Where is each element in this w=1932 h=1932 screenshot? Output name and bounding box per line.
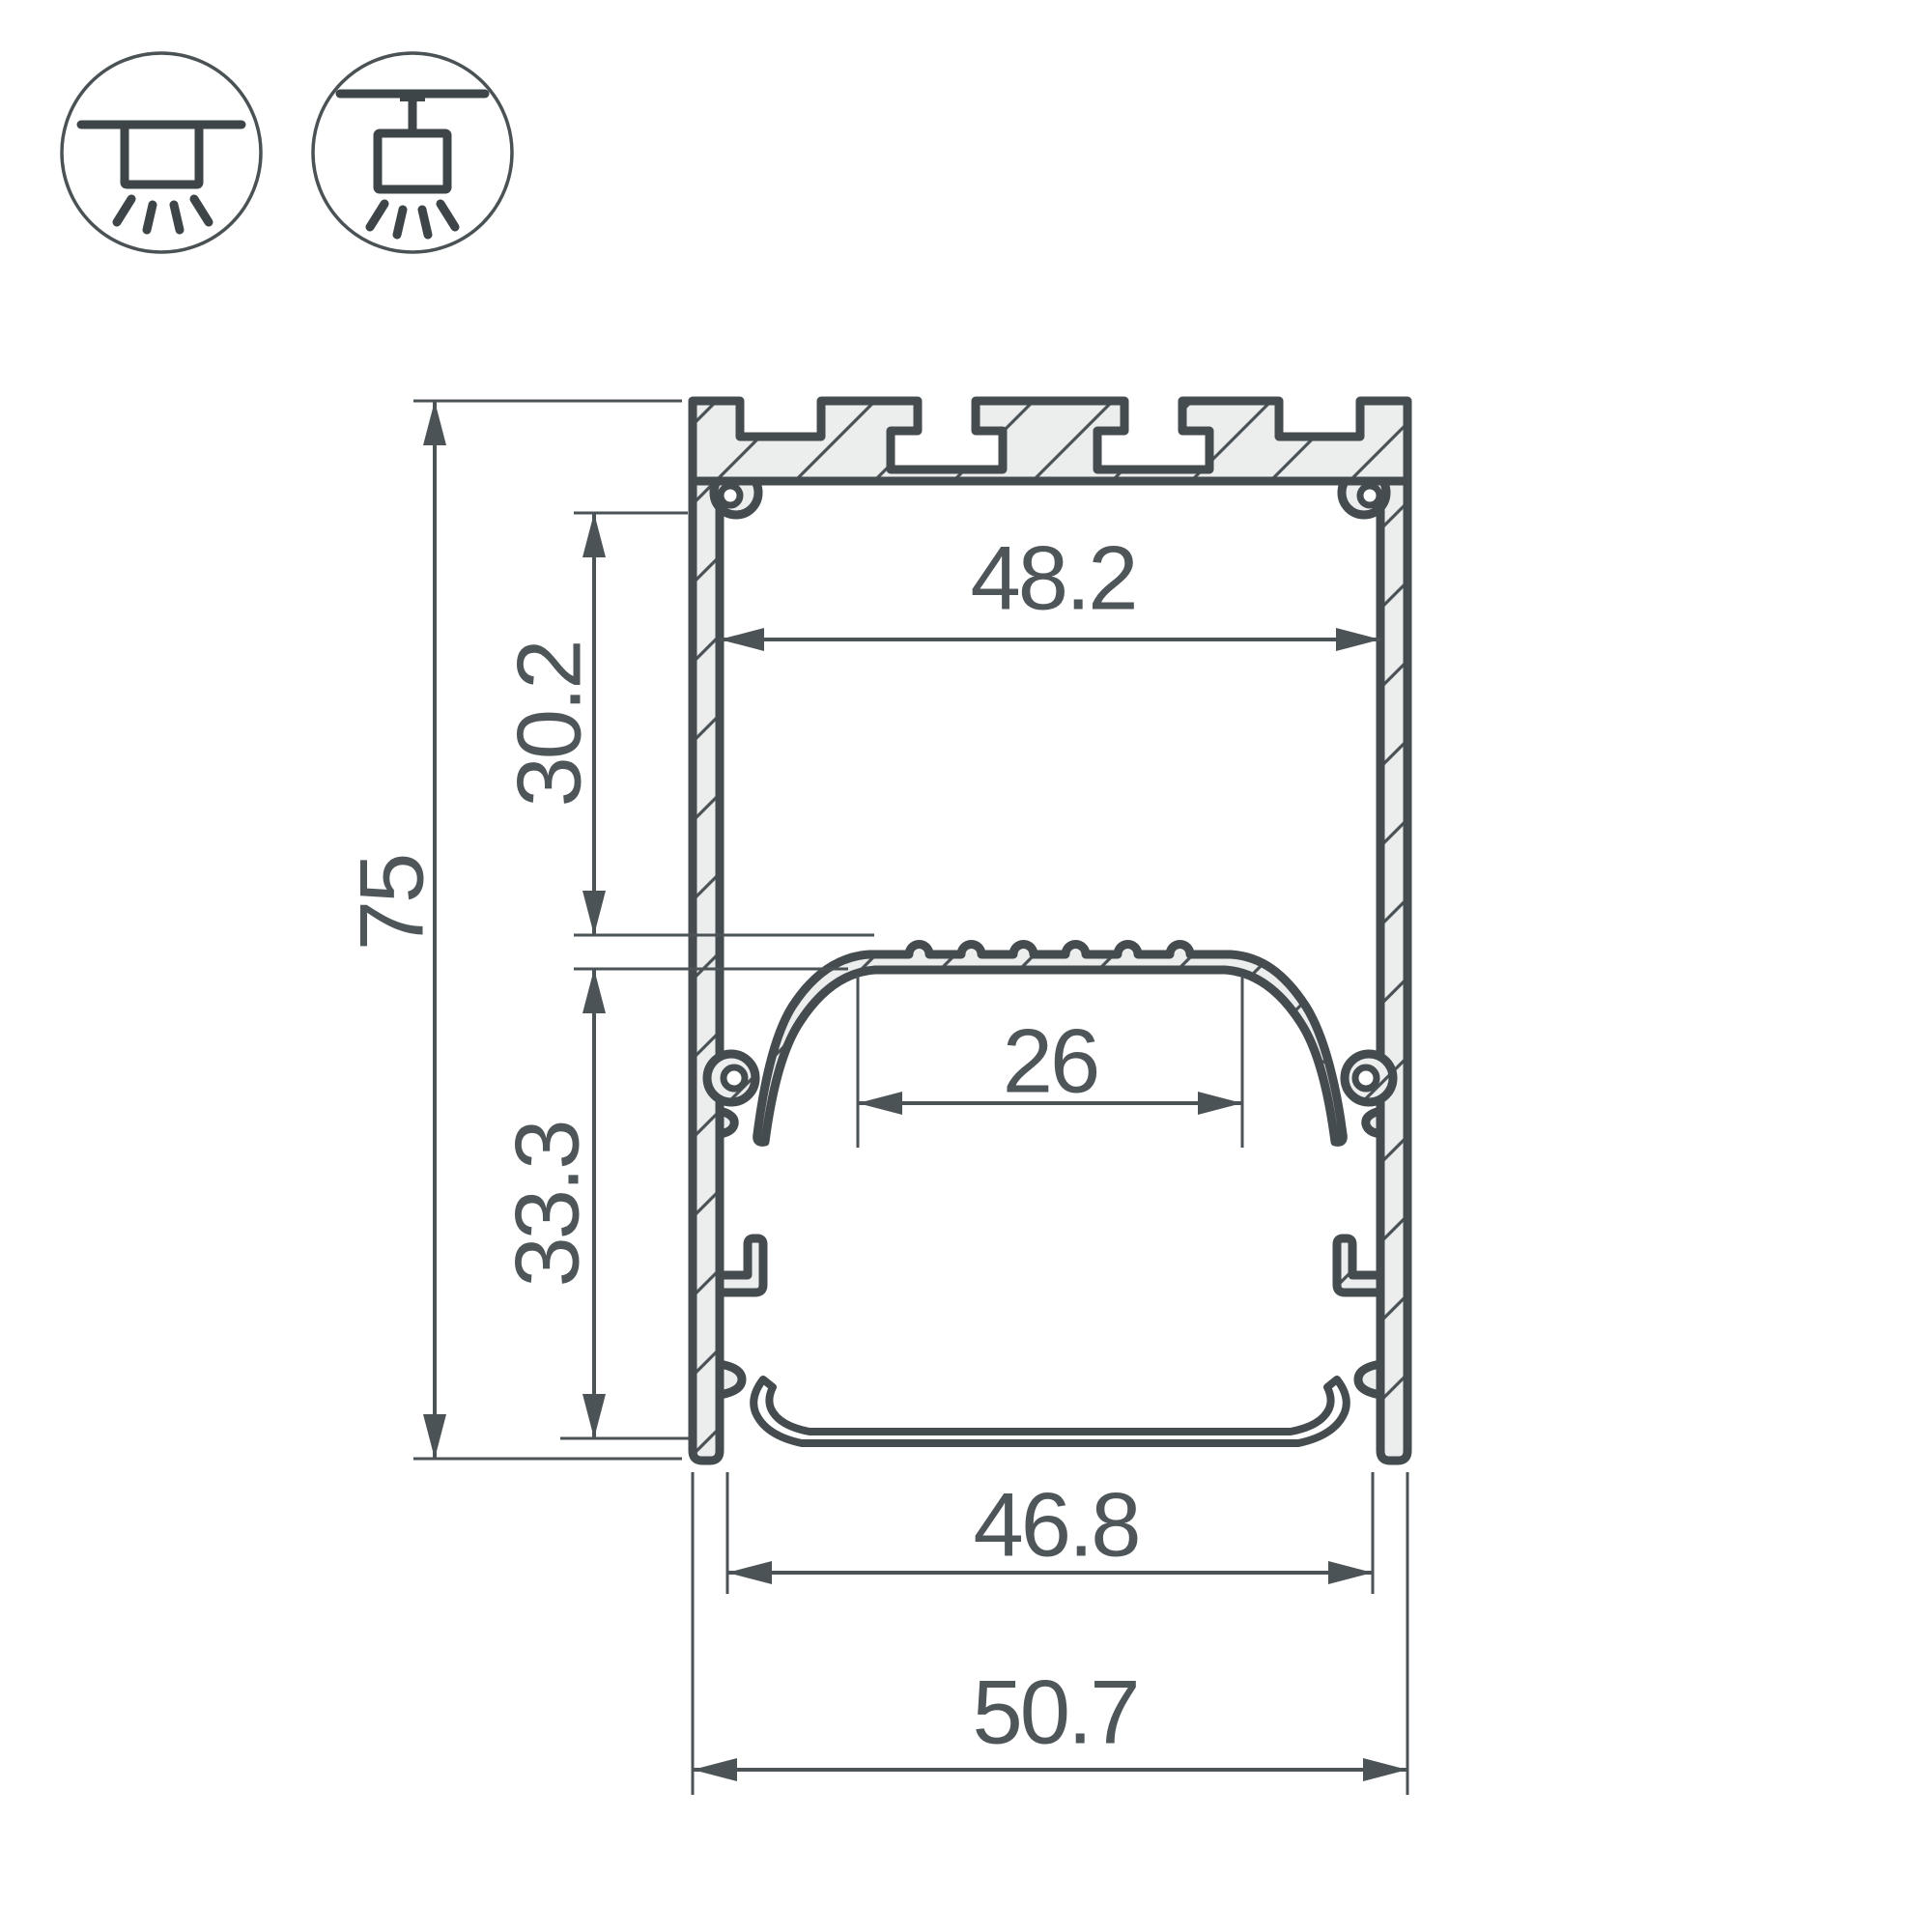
right-wall-hook bbox=[1337, 1238, 1380, 1293]
extension-lines bbox=[413, 401, 1407, 1795]
dim-inner-top-width-label: 48.2 bbox=[971, 527, 1136, 629]
arrowhead-left bbox=[727, 1561, 772, 1584]
arrowhead-left bbox=[720, 628, 764, 651]
dim-total-height-label: 75 bbox=[341, 856, 442, 952]
arrowhead-up bbox=[582, 969, 606, 1013]
pendant-mount-light-icon bbox=[313, 53, 512, 252]
arrowhead-right bbox=[1328, 1561, 1373, 1584]
arrowhead-right bbox=[1363, 1758, 1407, 1781]
arrowhead-left bbox=[693, 1758, 737, 1781]
left-screw-boss-hole bbox=[724, 1067, 745, 1089]
left-wall-hook bbox=[720, 1238, 763, 1293]
fixture-box bbox=[378, 133, 447, 189]
arrowhead-left bbox=[858, 1092, 902, 1115]
dimension-inner-bottom-width: 46.8 bbox=[727, 1474, 1373, 1585]
arrowhead-down bbox=[582, 1394, 606, 1438]
right-wall bbox=[1380, 444, 1407, 1461]
dim-led-shelf-width-label: 26 bbox=[1003, 1010, 1098, 1112]
dim-total-width-label: 50.7 bbox=[973, 1662, 1138, 1763]
dimension-led-shelf-width: 26 bbox=[858, 1010, 1242, 1116]
light-ray bbox=[174, 205, 180, 230]
light-ray bbox=[397, 210, 403, 235]
arrowhead-up bbox=[423, 401, 446, 445]
technical-drawing-page: 75 30.2 33.3 48.2 26 bbox=[0, 0, 1932, 1932]
left-wall bbox=[693, 444, 720, 1461]
right-corner-clip-hole bbox=[1360, 486, 1379, 505]
left-corner-clip-hole bbox=[721, 486, 740, 505]
left-boss-lip bbox=[720, 1111, 734, 1134]
light-ray bbox=[147, 205, 153, 230]
top-plate bbox=[693, 401, 1407, 481]
surface-mount-light-icon bbox=[62, 53, 261, 252]
light-ray bbox=[440, 204, 455, 227]
dim-upper-cavity-label: 30.2 bbox=[498, 642, 600, 808]
dimension-total-width: 50.7 bbox=[693, 1662, 1407, 1782]
right-screw-boss-hole bbox=[1355, 1067, 1377, 1089]
right-lens-catch bbox=[1358, 1364, 1380, 1395]
arrowhead-up bbox=[582, 513, 606, 557]
dim-inner-bottom-width-label: 46.8 bbox=[974, 1474, 1139, 1576]
bottom-diffuser-lens bbox=[753, 1379, 1347, 1443]
left-lens-catch bbox=[720, 1364, 742, 1395]
dimension-inner-top-width: 48.2 bbox=[720, 527, 1380, 652]
fixture-box bbox=[125, 125, 199, 185]
profile-drawing-canvas: 75 30.2 33.3 48.2 26 bbox=[0, 0, 1932, 1932]
arrowhead-down bbox=[423, 1414, 446, 1459]
light-ray bbox=[117, 199, 131, 222]
dimension-upper-cavity-height: 30.2 bbox=[498, 513, 607, 935]
light-ray bbox=[194, 199, 209, 222]
arrowhead-right bbox=[1198, 1092, 1242, 1115]
dimension-lower-cavity-height: 33.3 bbox=[497, 969, 607, 1438]
dimension-total-height: 75 bbox=[341, 401, 447, 1459]
arrowhead-down bbox=[582, 891, 606, 935]
dimension-annotations: 75 30.2 33.3 48.2 26 bbox=[341, 401, 1408, 1795]
dim-lower-cavity-label: 33.3 bbox=[497, 1122, 598, 1288]
right-boss-lip bbox=[1366, 1111, 1380, 1134]
light-ray bbox=[422, 210, 428, 235]
arrowhead-right bbox=[1336, 628, 1380, 651]
light-ray bbox=[370, 204, 384, 227]
